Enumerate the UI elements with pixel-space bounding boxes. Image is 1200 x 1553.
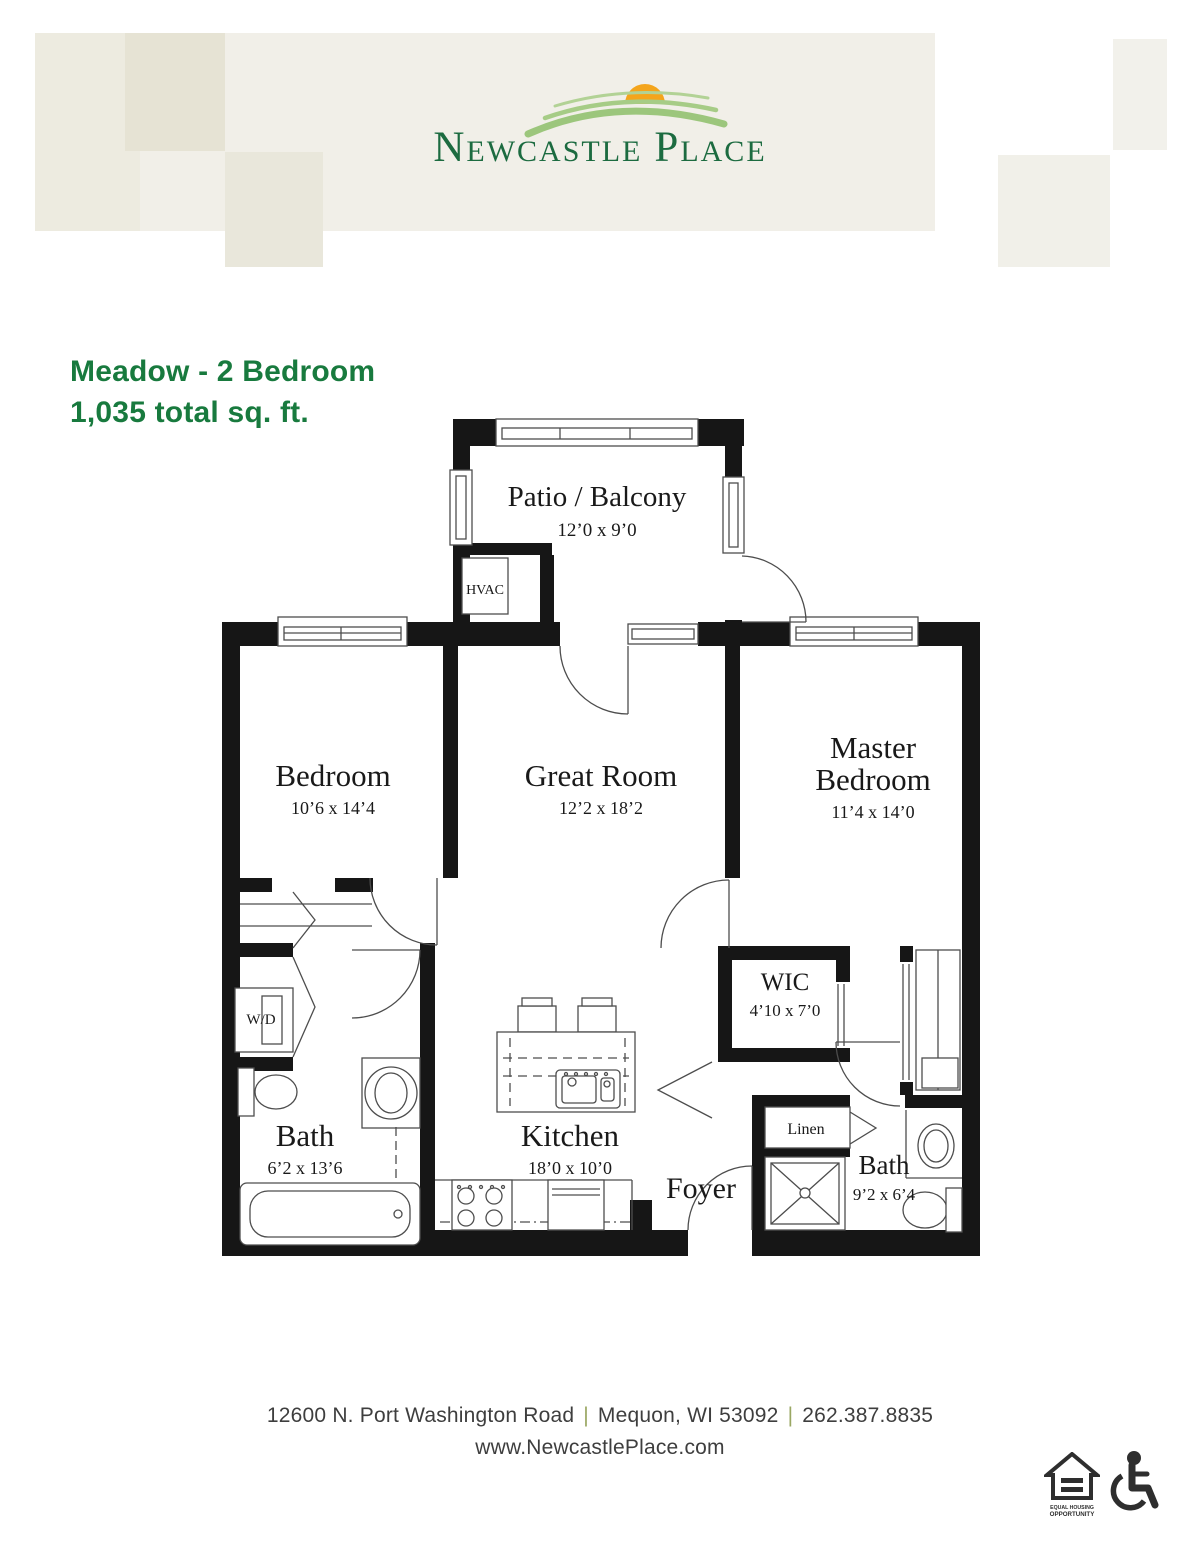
logo-wordmark: NEWCASTLEPLACE	[400, 126, 800, 169]
wic-sliding-door	[838, 984, 844, 1046]
room-label-foyer: Foyer	[666, 1172, 736, 1205]
wheelchair-icon	[1106, 1450, 1160, 1512]
logo-text: N	[433, 124, 466, 171]
room-dims-bedroom: 10’6 x 14’4	[291, 798, 375, 818]
room-dims-patio: 12’0 x 9’0	[557, 520, 636, 541]
room-label-great-room: Great Room	[525, 758, 677, 793]
room-label-kitchen: Kitchen	[521, 1118, 620, 1153]
room-label-wd: W/D	[246, 1012, 275, 1028]
room-label-linen: Linen	[787, 1121, 824, 1138]
header-square	[225, 152, 323, 267]
dishwasher	[548, 1180, 604, 1230]
stove	[452, 1180, 512, 1230]
logo-text: LACE	[680, 135, 766, 168]
room-dims-kitchen: 18’0 x 10’0	[528, 1158, 612, 1178]
master-bath-sink	[906, 1110, 962, 1178]
room-dims-master: 11’4 x 14’0	[831, 802, 914, 822]
header-square	[998, 155, 1110, 267]
master-bedroom-door	[661, 880, 729, 948]
header-square	[1113, 39, 1167, 150]
room-dims-wic: 4’10 x 7’0	[750, 1001, 821, 1020]
room-dims-bath: 6’2 x 13’6	[268, 1158, 343, 1178]
master-closet-sliding-door	[903, 964, 909, 1080]
footer-website-line: www.NewcastlePlace.com	[0, 1436, 1200, 1460]
kitchen-island	[497, 998, 635, 1112]
foyer-closet-bifold	[658, 1062, 712, 1118]
bath-door	[352, 950, 420, 1018]
room-label-bath: Bath	[276, 1118, 335, 1153]
footer-separator: |	[574, 1404, 598, 1427]
toilet	[238, 1068, 297, 1116]
room-dims-great-room: 12’2 x 18’2	[559, 798, 643, 818]
room-label-master-line2: Bedroom	[815, 762, 930, 797]
room-label-hvac: HVAC	[466, 583, 504, 598]
room-dims-master-bath: 9’2 x 6’4	[853, 1185, 916, 1204]
logo-text: P	[654, 124, 680, 171]
room-label-bedroom: Bedroom	[275, 758, 390, 793]
patio-door	[742, 556, 806, 622]
room-label-wic: WIC	[761, 969, 810, 996]
logo-text: EWCASTLE	[466, 135, 642, 168]
footer-phone: 262.387.8835	[802, 1404, 933, 1427]
room-label-patio: Patio / Balcony	[508, 481, 687, 513]
footer-website: www.NewcastlePlace.com	[475, 1436, 724, 1459]
equal-housing-icon: EQUAL HOUSING OPPORTUNITY	[1044, 1452, 1100, 1518]
footer-city: Mequon, WI 53092	[598, 1404, 779, 1427]
floor-plan: Patio / Balcony 12’0 x 9’0 HVAC Bedroom …	[200, 400, 1010, 1280]
equal-housing-text-line2: OPPORTUNITY	[1050, 1511, 1096, 1518]
bathtub	[240, 1183, 420, 1245]
bedroom-door	[370, 878, 437, 945]
master-wardrobe	[916, 950, 960, 1090]
footer-separator: |	[779, 1404, 803, 1427]
room-label-master-line1: Master	[830, 730, 917, 765]
linen-bifold	[850, 1112, 876, 1144]
balcony-door	[560, 646, 628, 714]
shower	[765, 1157, 845, 1230]
room-label-master-bath: Bath	[859, 1150, 910, 1180]
footer-address-line: 12600 N. Port Washington Road|Mequon, WI…	[0, 1404, 1200, 1428]
bath-sink	[362, 1058, 420, 1128]
header-square	[125, 33, 225, 151]
closet-bifold	[293, 892, 315, 1057]
footer-address: 12600 N. Port Washington Road	[267, 1404, 574, 1427]
plan-title-line1: Meadow - 2 Bedroom	[70, 351, 375, 392]
